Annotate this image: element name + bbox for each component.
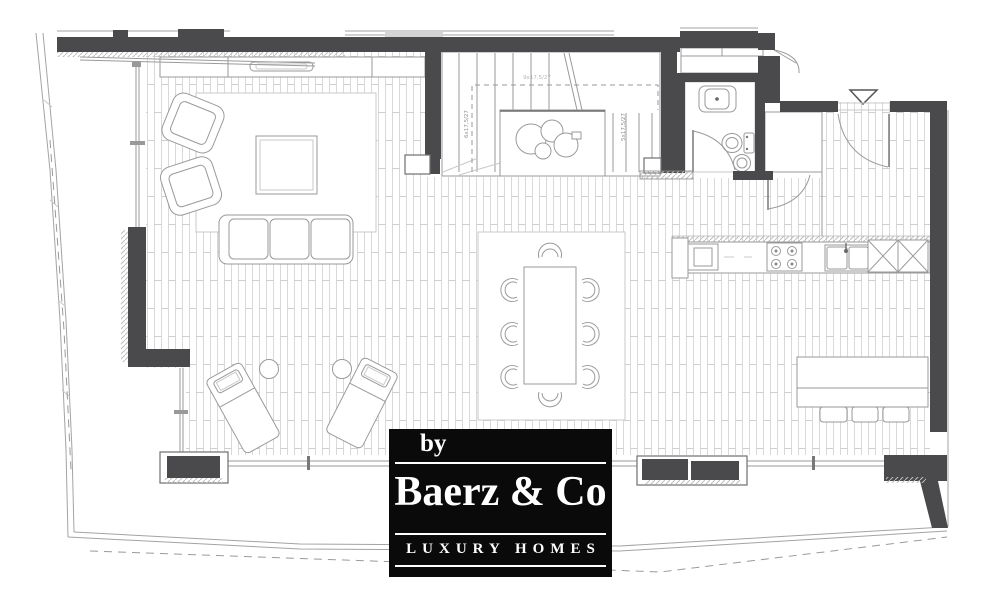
wardrobe-closet-top (681, 48, 763, 73)
stair-label-top: 9x17,5/27 (523, 75, 551, 81)
desk-chair (852, 407, 878, 422)
toilet (722, 133, 754, 153)
stair-label-left: 6x17,5/27 (464, 110, 470, 138)
logo-rule (395, 462, 606, 464)
floor-plan-canvas: 6x17,5/27 5x17,5/27 9x17,5/27 (0, 0, 1000, 597)
logo-rule (395, 565, 606, 567)
tray-decor (250, 62, 313, 71)
baerz-co-watermark: by Baerz & Co LUXURY HOMES (389, 429, 612, 577)
logo-tagline: LUXURY HOMES (389, 541, 612, 558)
bidet (734, 155, 751, 172)
desk-chair (820, 407, 847, 422)
logo-rule (395, 533, 606, 535)
counter-end-cabinet (672, 238, 688, 278)
cabinet-unit (868, 240, 928, 272)
desk-chair (883, 407, 909, 422)
desk (797, 357, 928, 407)
stair-label-right: 5x17,5/27 (621, 113, 627, 141)
side-table (333, 360, 352, 379)
dining-table (524, 267, 576, 384)
sofa (219, 215, 353, 264)
bathroom-sink (699, 86, 736, 112)
side-table (260, 360, 279, 379)
stair-landing (500, 110, 605, 176)
kitchen (672, 236, 930, 278)
logo-by-text: by (420, 430, 446, 458)
logo-brand-name: Baerz & Co (389, 468, 612, 516)
dining-area (478, 232, 625, 420)
